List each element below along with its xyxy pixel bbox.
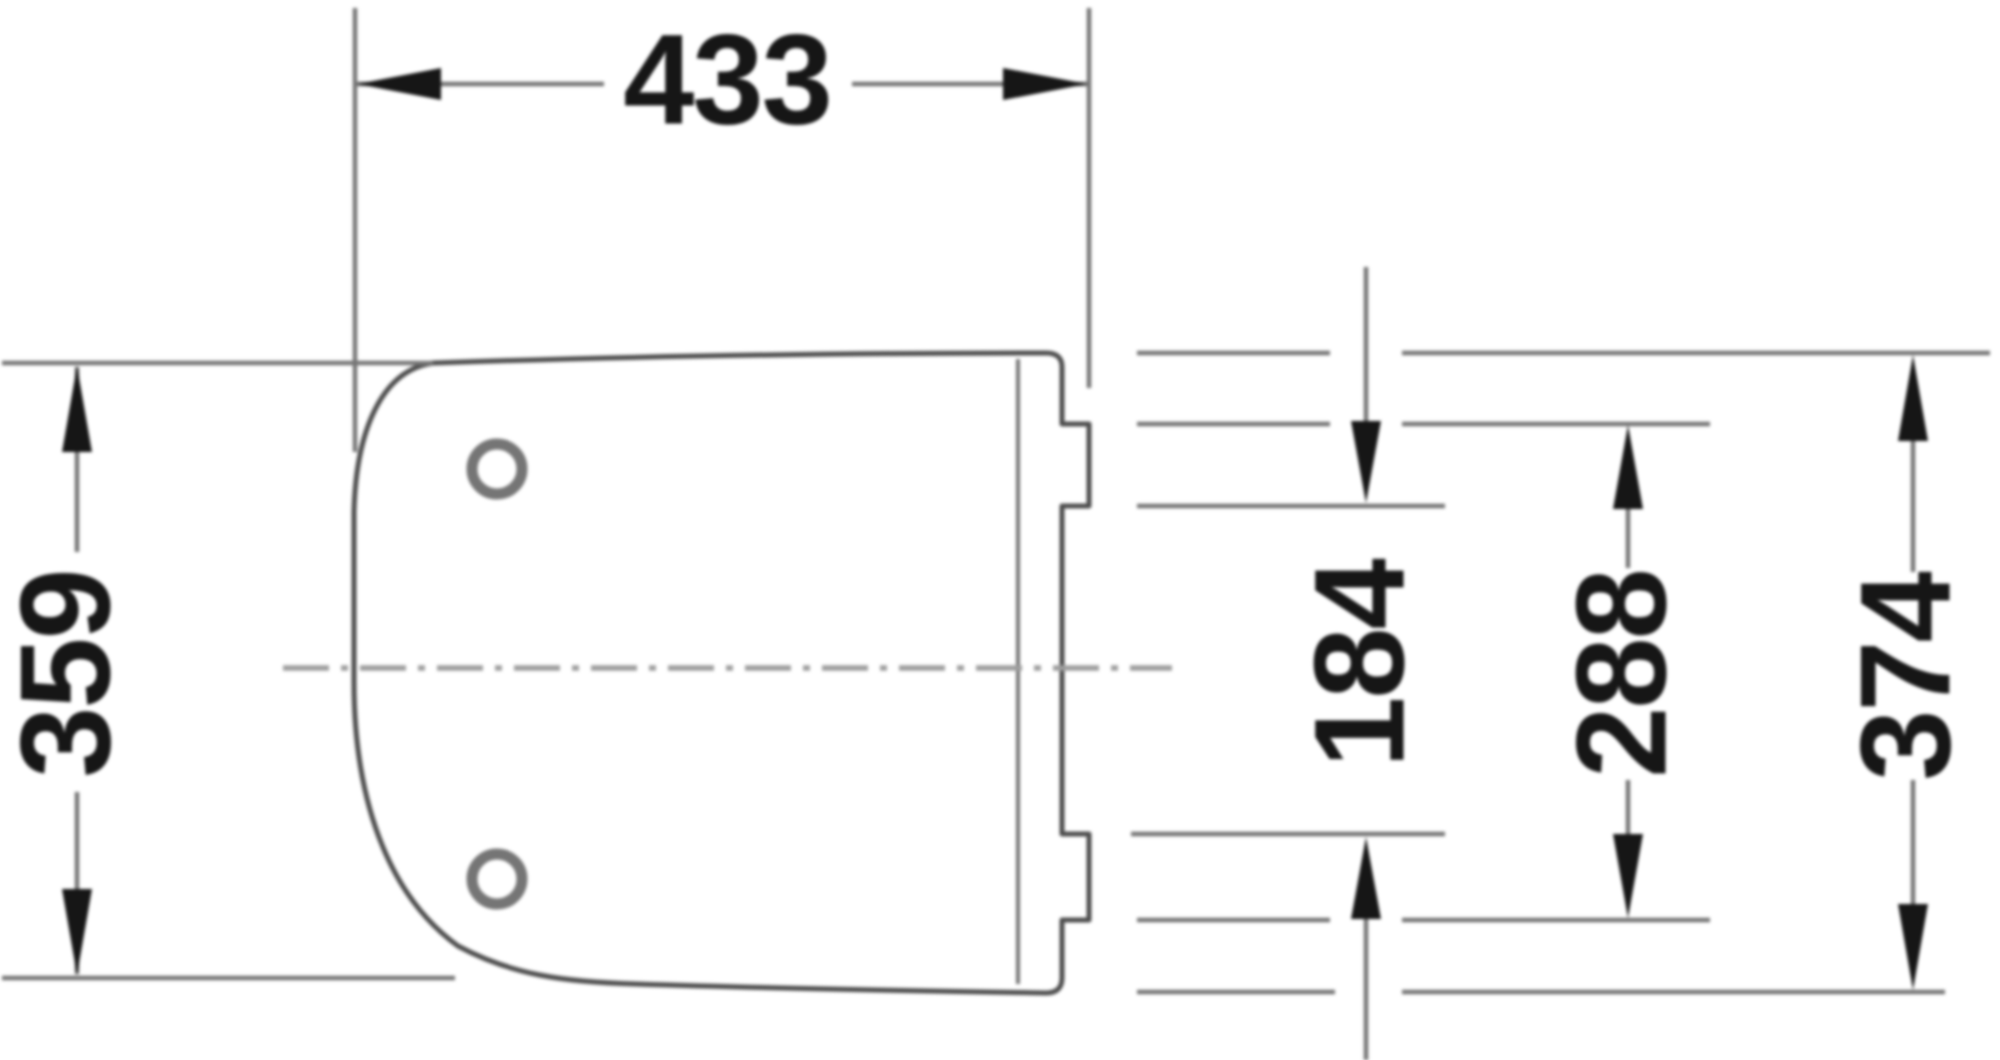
arrowhead-down: [62, 889, 92, 975]
hinge-hole-top: [472, 444, 522, 494]
arrowhead-right: [1003, 68, 1087, 100]
arrowhead-down: [1351, 421, 1381, 503]
dimension-overall-height: 374: [1835, 355, 1978, 990]
arrowhead-down: [1613, 834, 1643, 918]
arrowhead-up: [1898, 355, 1928, 441]
drawing-sheet: 433 359: [0, 0, 2000, 1060]
arrowhead-up: [1613, 425, 1643, 509]
dimension-hinge-inner-span: 184: [1289, 267, 1432, 1060]
seat-plan-view: [283, 353, 1172, 993]
arrowhead-up: [1351, 837, 1381, 919]
dimension-label-hinge-plate-span: 288: [1551, 570, 1694, 778]
arrowhead-left: [357, 68, 441, 100]
seat-outline: [354, 353, 1089, 993]
dimension-label-hinge-inner-span: 184: [1289, 558, 1432, 767]
dimension-label-front-height: 359: [0, 570, 138, 778]
dimension-label-overall-height: 374: [1835, 571, 1978, 780]
arrowhead-down: [1898, 904, 1928, 990]
dimension-drawing-canvas: 433 359: [0, 0, 2000, 1060]
hinge-hole-bottom: [472, 854, 522, 904]
dimension-overall-width: 433: [355, 8, 1089, 452]
arrowhead-up: [62, 366, 92, 452]
dimension-hinge-plate-span: 288: [1551, 425, 1694, 918]
dimension-label-overall-width: 433: [623, 9, 831, 152]
